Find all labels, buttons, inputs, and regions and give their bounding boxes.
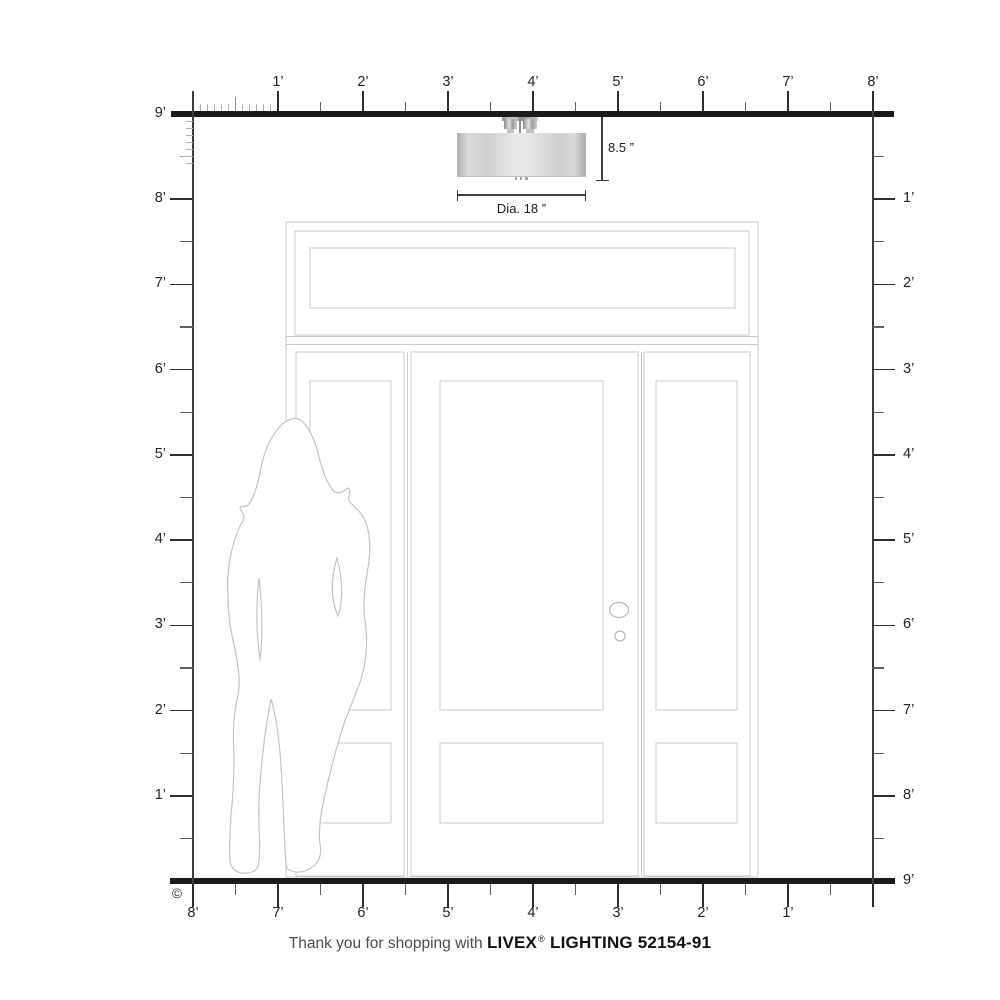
door-upper-panel — [440, 381, 603, 710]
door-keyhole — [615, 631, 625, 641]
door-lower-panel — [440, 743, 603, 823]
fixture-height-label: 8.5 ” — [608, 140, 634, 155]
copyright-symbol: © — [172, 886, 182, 901]
fixture-drum-shade — [457, 133, 586, 177]
height-dimension-line — [601, 117, 602, 181]
fixture-bottom-detail — [525, 177, 528, 180]
fixture-canopy-nub-left — [507, 129, 515, 133]
footer-note: Thank you for shopping with LIVEX® LIGHT… — [0, 933, 1000, 953]
footer-thanks-text: Thank you for shopping with — [289, 935, 483, 952]
fixture-diameter-label: Dia. 18 ” — [457, 201, 586, 216]
footer-brand-name: LIVEX — [487, 933, 537, 952]
right-sidelight-upper-panel — [656, 381, 737, 710]
size-comparison-chart: 1’2’3’4’5’6’7’8’9’8’7’6’5’4’3’2’1’1’2’3’… — [0, 0, 1000, 1000]
footer-product-number: LIGHTING 52154-91 — [550, 933, 711, 952]
door-knob — [610, 603, 629, 618]
diameter-dimension-line — [457, 194, 586, 195]
right-sidelight — [644, 352, 750, 876]
human-figure-silhouette — [228, 419, 370, 874]
fixture-canopy-nub-right — [526, 129, 534, 133]
figure-outline — [228, 419, 370, 874]
fixture-canopy-cylinder-left — [504, 119, 518, 129]
fixture-canopy-cylinder-right — [523, 119, 537, 129]
door-slab — [411, 352, 638, 876]
registered-trademark-icon: ® — [537, 934, 546, 944]
transom-pane — [310, 248, 735, 308]
diameter-dimension-cap-left — [457, 190, 458, 201]
fixture-bottom-detail — [515, 177, 518, 180]
right-sidelight-lower-panel — [656, 743, 737, 823]
height-dimension-cap — [596, 180, 609, 181]
diameter-dimension-cap-right — [585, 190, 586, 201]
transom-frame — [295, 231, 749, 335]
